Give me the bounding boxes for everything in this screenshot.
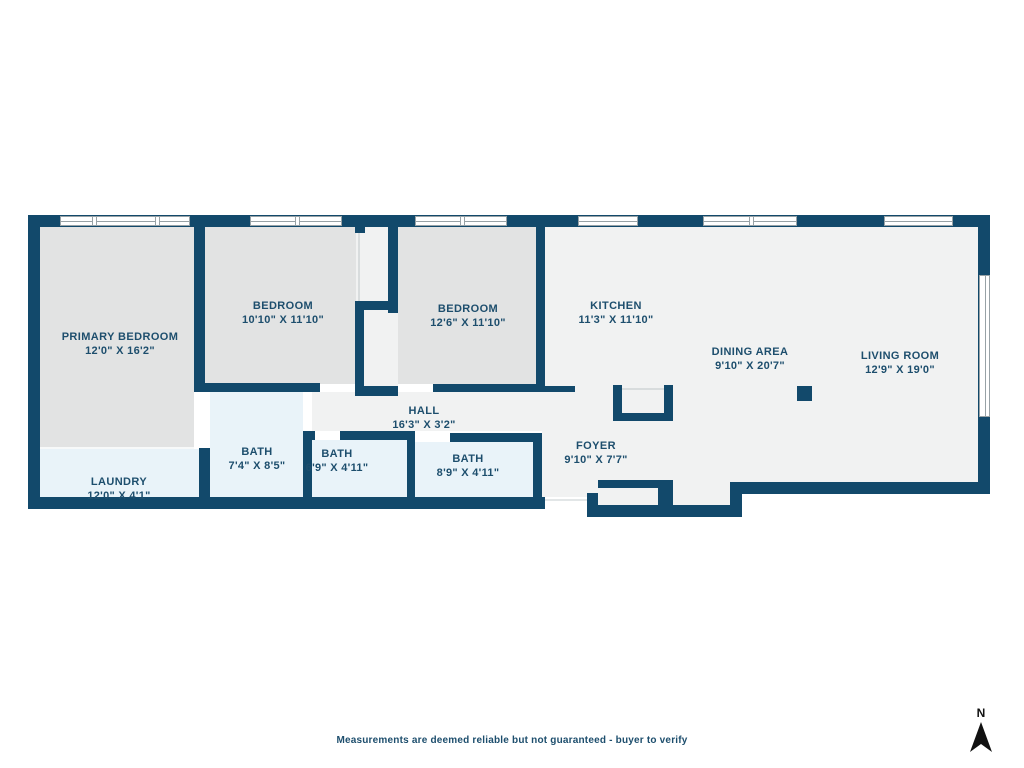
room-label-kitchen: KITCHEN 11'3" X 11'10" xyxy=(579,299,654,327)
room-name: PRIMARY BEDROOM xyxy=(62,330,179,344)
room-dims: 12'9" X 19'0" xyxy=(861,363,939,377)
room-name: KITCHEN xyxy=(579,299,654,313)
room-name: HALL xyxy=(392,404,455,418)
wall-closet-left xyxy=(355,301,364,396)
room-label-foyer: FOYER 9'10" X 7'7" xyxy=(564,439,627,467)
window-divider xyxy=(155,217,160,225)
room-label-living-room: LIVING ROOM 12'9" X 19'0" xyxy=(861,349,939,377)
window xyxy=(884,216,953,226)
wall-kcloset-right xyxy=(664,385,673,421)
wall-kitchen-stub xyxy=(545,386,575,392)
room-label-laundry: LAUNDRY 12'0" X 4'1" xyxy=(87,475,150,503)
room-dims: 9'10" X 7'7" xyxy=(564,453,627,467)
laundry-opening-line xyxy=(40,447,194,449)
north-arrow-icon xyxy=(969,722,993,752)
room-label-dining-area: DINING AREA 9'10" X 20'7" xyxy=(712,345,789,373)
room-label-bath-small: BATH 6'9" X 4'11" xyxy=(306,447,369,475)
room-name: LAUNDRY xyxy=(87,475,150,489)
wall-entry-stub xyxy=(587,493,598,517)
wall-left xyxy=(28,215,40,509)
wall-bedroomB-bottom xyxy=(433,384,545,392)
wall-laundry-bath xyxy=(199,448,210,498)
wall-bath-hall-top xyxy=(450,433,542,442)
wall-primary-bedroomA xyxy=(194,215,205,392)
wall-closet-bottom xyxy=(355,386,398,396)
room-name: FOYER xyxy=(564,439,627,453)
window xyxy=(979,275,990,417)
wall-bath-foyer xyxy=(533,433,542,497)
floor-plan: PRIMARY BEDROOM 12'0" X 16'2" BEDROOM 10… xyxy=(0,0,1024,768)
room-dims: 10'10" X 11'10" xyxy=(242,313,324,327)
room-label-bath-hall: BATH 8'9" X 4'11" xyxy=(437,452,500,480)
room-dims: 12'6" X 11'10" xyxy=(430,316,506,330)
window xyxy=(703,216,797,226)
window xyxy=(415,216,507,226)
wall-bath-small-top xyxy=(340,431,415,440)
structural-column xyxy=(797,386,812,401)
wall-bedroomB-kitchen xyxy=(536,215,545,392)
room-label-hall: HALL 16'3" X 3'2" xyxy=(392,404,455,432)
room-dims: 6'9" X 4'11" xyxy=(306,461,369,475)
window xyxy=(60,216,190,226)
room-dims: 8'9" X 4'11" xyxy=(437,466,500,480)
room-dims: 12'0" X 16'2" xyxy=(62,344,179,358)
room-label-bath-primary: BATH 7'4" X 8'5" xyxy=(229,445,286,473)
room-name: DINING AREA xyxy=(712,345,789,359)
room-name: BATH xyxy=(437,452,500,466)
wall-bottom-right xyxy=(742,482,990,494)
wall-entry-closet-right xyxy=(658,480,673,507)
disclaimer-text: Measurements are deemed reliable but not… xyxy=(0,735,1024,746)
room-label-primary-bedroom: PRIMARY BEDROOM 12'0" X 16'2" xyxy=(62,330,179,358)
room-dims: 16'3" X 3'2" xyxy=(392,418,455,432)
window xyxy=(250,216,342,226)
closet-door-line xyxy=(358,233,360,301)
window-divider xyxy=(749,217,754,225)
room-name: BATH xyxy=(306,447,369,461)
front-door-threshold xyxy=(545,499,587,501)
wall-bath-primary-stub xyxy=(303,383,312,392)
room-label-bedroom-b: BEDROOM 12'6" X 11'10" xyxy=(430,302,506,330)
north-label: N xyxy=(967,706,995,720)
room-name: BEDROOM xyxy=(242,299,324,313)
window-divider xyxy=(92,217,97,225)
window xyxy=(578,216,638,226)
window-divider xyxy=(460,217,465,225)
north-compass: N xyxy=(967,706,995,752)
room-name: BEDROOM xyxy=(430,302,506,316)
wall-bath-small-top-stub xyxy=(303,431,315,440)
wall-bath-divider xyxy=(407,431,415,497)
room-dims: 9'10" X 20'7" xyxy=(712,359,789,373)
room-dims: 7'4" X 8'5" xyxy=(229,459,286,473)
kitchen-closet-door-line xyxy=(622,388,664,390)
wall-step-connector xyxy=(730,482,742,517)
room-name: LIVING ROOM xyxy=(861,349,939,363)
room-dims: 11'3" X 11'10" xyxy=(579,313,654,327)
room-label-bedroom-a: BEDROOM 10'10" X 11'10" xyxy=(242,299,324,327)
window-divider xyxy=(295,217,300,225)
wall-closet-stub-top xyxy=(355,215,365,233)
wall-entry-closet-top xyxy=(598,480,658,488)
wall-closet-right xyxy=(388,215,398,313)
room-name: BATH xyxy=(229,445,286,459)
room-dims: 12'0" X 4'1" xyxy=(87,489,150,503)
